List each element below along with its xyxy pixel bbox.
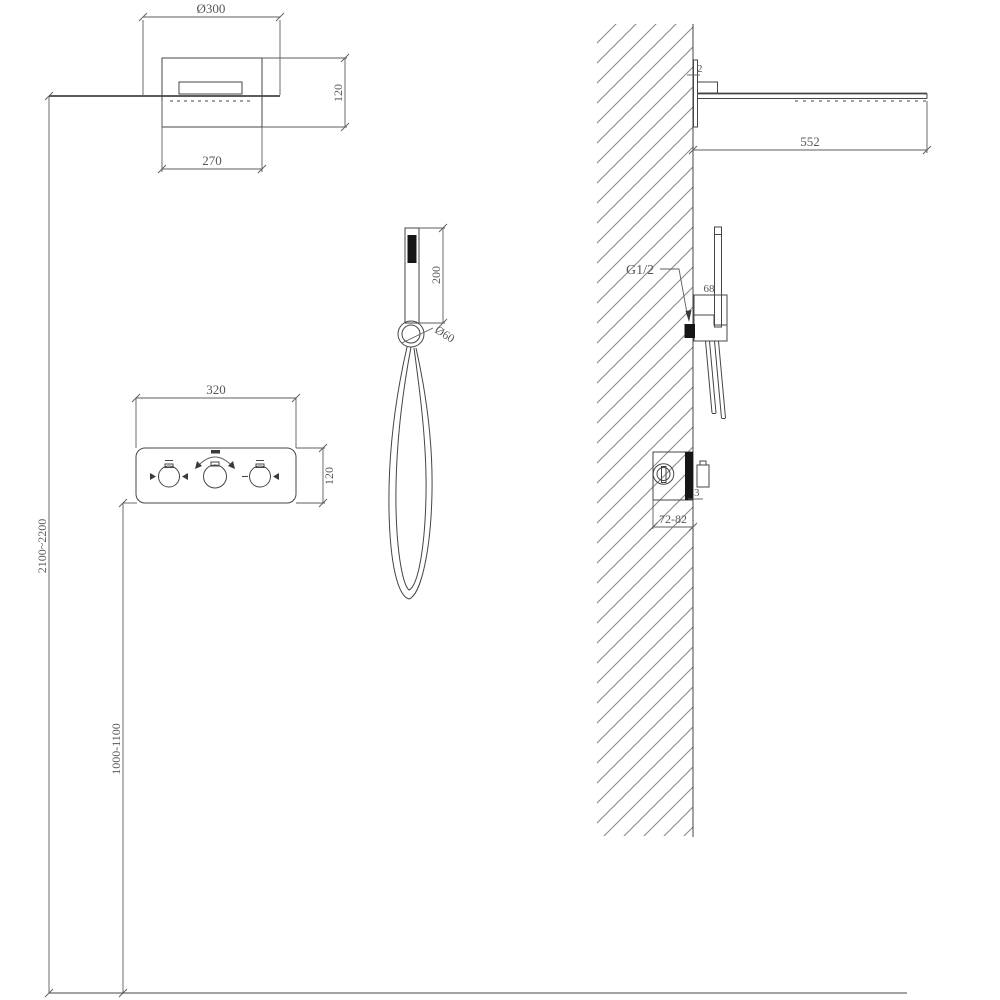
overhead-shower-front-view [49,58,280,127]
technical-drawing: Ø300 120 270 2100~2200 1000-1100 [0,0,1000,1000]
arm-bracket [698,82,718,93]
holder-bracket [694,295,727,341]
overhead-mounting-height-label: 2100~2200 [35,519,49,574]
spray-mode-icon-right [182,473,188,480]
mixer-panel-front-view [136,448,296,503]
trim-plate [685,452,693,500]
holder-ring-inner [402,325,420,343]
wall-section [597,24,693,837]
wall-plate-thickness-label: 2 [697,63,703,75]
flow-knob-right [242,461,279,488]
trim-gap-label: 3 [694,487,700,499]
dim-panel-width: 320 [132,382,300,448]
overhead-shower-side-view [694,60,928,127]
holder-depth-label: 68 [704,283,716,295]
valve-knob [697,465,709,487]
wall-hatching [597,24,693,836]
flow-plus-icon [273,473,279,480]
holder-diameter-label: Ø60 [432,323,457,346]
embed-depth-label: 72-82 [659,512,687,526]
dim-overhead-mounting-height: 2100~2200 [35,92,53,997]
overhead-width-label: 270 [202,153,222,168]
dim-overhead-width: 270 [158,101,266,173]
panel-mounting-height-label: 1000-1100 [109,723,123,775]
arm-projection-label: 552 [800,134,820,149]
dim-overhead-height: 120 [262,54,349,131]
hose-inner [396,347,426,590]
dim-panel-mounting-height: 1000-1100 [109,499,137,997]
dim-holder-depth: 68 [704,283,716,295]
temperature-knob-middle [195,450,235,488]
dim-panel-height: 120 [296,444,336,507]
thread-size-label: G1/2 [626,263,654,278]
drawing-svg: Ø300 120 270 2100~2200 1000-1100 [0,0,1000,1000]
dim-handshower-length: 200 [419,224,447,327]
overhead-diameter-label: Ø300 [197,1,226,16]
overhead-height-label: 120 [331,84,345,102]
hose-side [706,341,726,419]
spray-face [408,235,417,263]
hand-shower-front-view [389,228,432,599]
wall-elbow-fitting [685,324,696,338]
spray-mode-icon-left [150,473,156,480]
dim-holder-diameter: Ø60 [402,323,457,346]
panel-height-label: 120 [322,467,336,485]
panel-width-label: 320 [206,382,226,397]
dim-arm-projection: 552 [689,101,931,154]
handshower-length-label: 200 [429,266,443,284]
diverter-knob-left [150,461,188,488]
